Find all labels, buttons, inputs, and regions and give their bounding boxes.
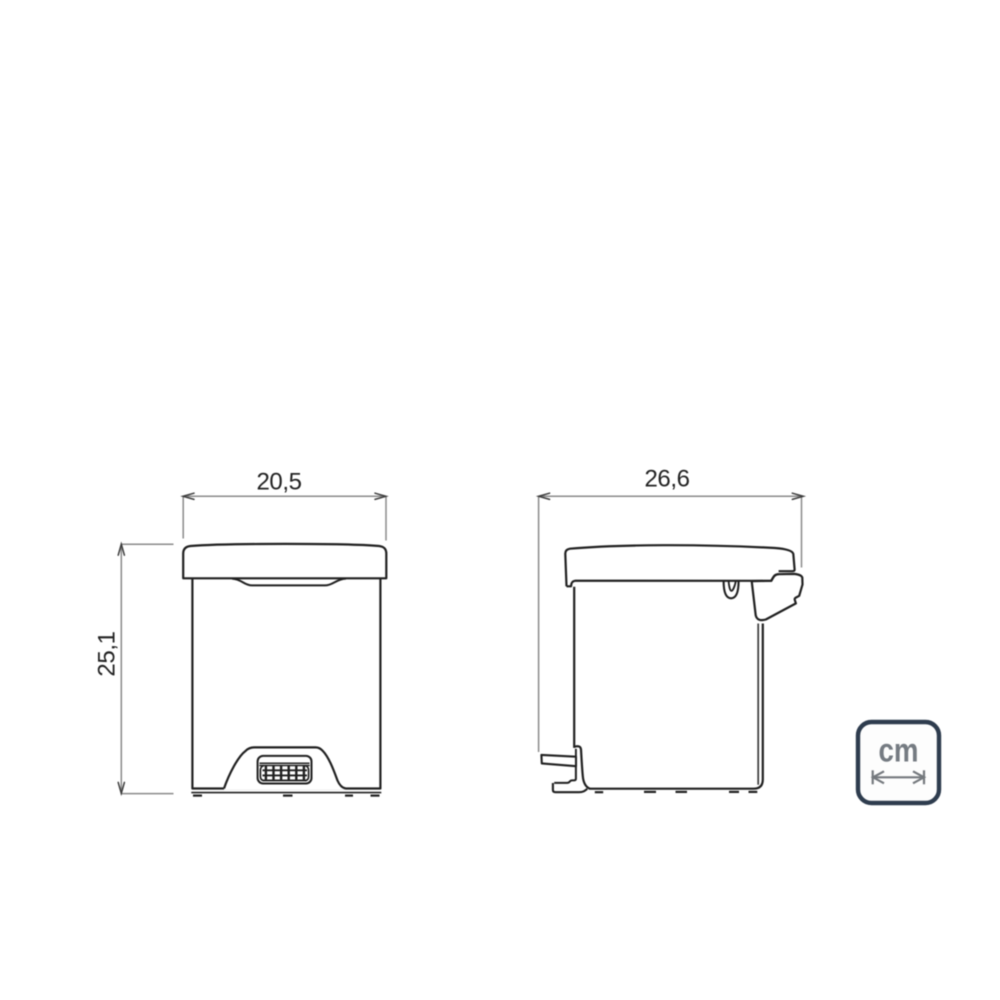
svg-text:20,5: 20,5	[256, 468, 301, 495]
svg-text:25,1: 25,1	[94, 631, 121, 676]
svg-text:cm: cm	[879, 732, 919, 769]
svg-text:26,6: 26,6	[644, 465, 689, 492]
